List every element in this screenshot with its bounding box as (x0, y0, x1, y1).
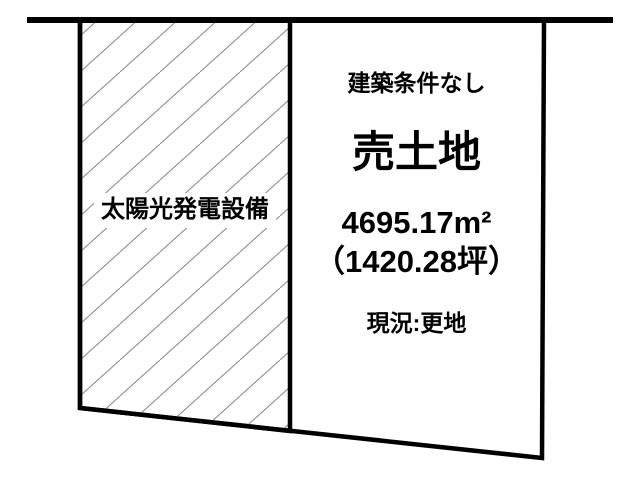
area-square-meters: 4695.17m² (290, 205, 543, 241)
solar-section-label: 太陽光発電設備 (94, 193, 276, 228)
sale-land-title: 売土地 (290, 129, 543, 178)
listing-info: 建築条件なし 売土地 4695.17m² （1420.28坪） 現況:更地 (290, 0, 543, 460)
land-plot-diagram: 太陽光発電設備 建築条件なし 売土地 4695.17m² （1420.28坪） … (0, 0, 640, 484)
current-status-text: 現況:更地 (290, 310, 543, 336)
solar-section-label-wrap: 太陽光発電設備 (80, 193, 290, 228)
area-tsubo: （1420.28坪） (290, 244, 543, 280)
building-condition-text: 建築条件なし (290, 70, 543, 96)
